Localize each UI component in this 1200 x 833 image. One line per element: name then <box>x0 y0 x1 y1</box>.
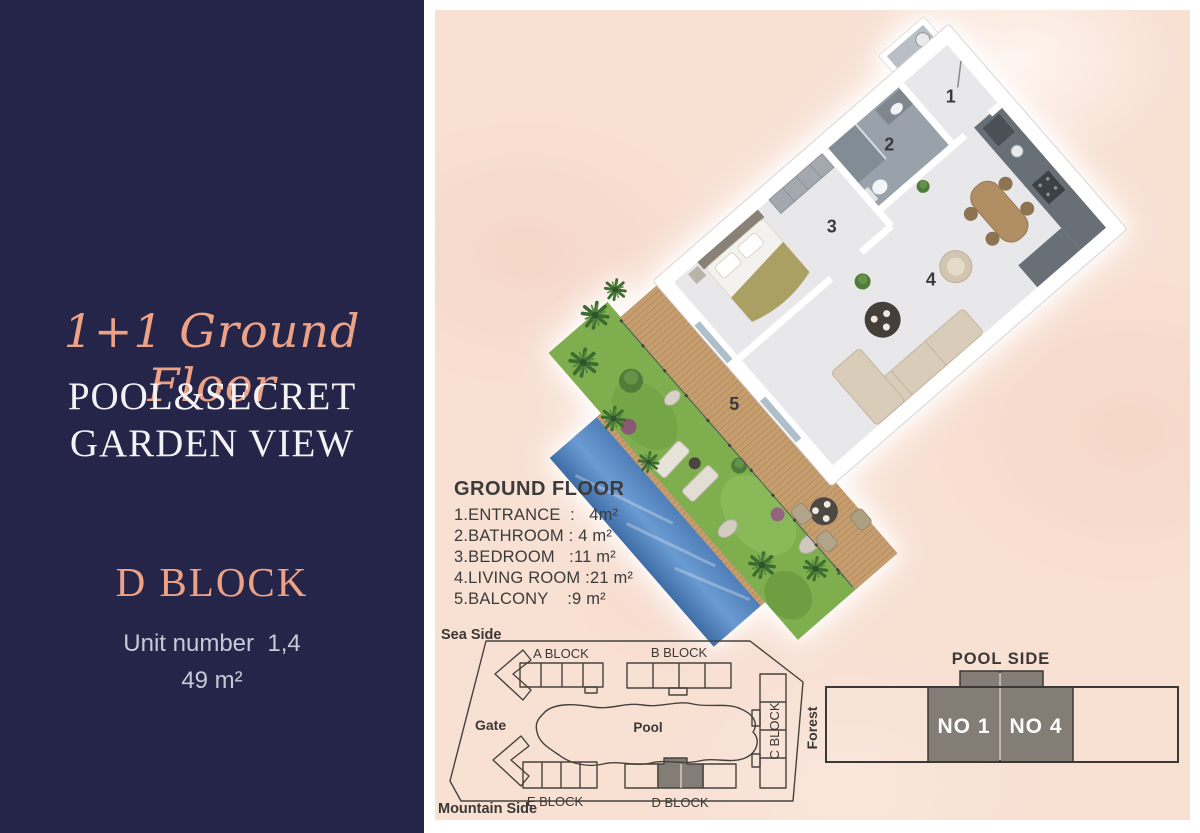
subtitle-line-2: GARDEN VIEW <box>0 421 424 466</box>
unit-no4-label: NO 4 <box>1009 715 1062 738</box>
block-b-label: B BLOCK <box>651 645 708 660</box>
room-number-balcony: 5 <box>729 394 739 414</box>
plan-panel: 1 2 3 4 5 <box>435 10 1190 820</box>
forest-label: Forest <box>804 706 820 749</box>
block-title: D BLOCK <box>0 558 424 606</box>
legend-item-entrance: 1.ENTRANCE : 4m² <box>454 505 633 526</box>
legend-item-bathroom: 2.BATHROOM : 4 m² <box>454 526 633 547</box>
page: 1+1 Ground Floor POOL&SECRET GARDEN VIEW… <box>0 0 1200 833</box>
legend-item-bedroom: 3.BEDROOM :11 m² <box>454 547 633 568</box>
site-block-e <box>493 736 597 788</box>
floor-plan-legend: GROUND FLOOR 1.ENTRANCE : 4m² 2.BATHROOM… <box>454 478 633 610</box>
block-e-label: E BLOCK <box>527 794 584 809</box>
pool-side-label: POOL SIDE <box>952 650 1051 668</box>
legend-title: GROUND FLOOR <box>454 478 633 501</box>
subtitle-line-1: POOL&SECRET <box>0 374 424 419</box>
legend-item-balcony: 5.BALCONY :9 m² <box>454 589 633 610</box>
unit-no1-label: NO 1 <box>937 715 990 738</box>
legend-item-living-room: 4.LIVING ROOM :21 m² <box>454 568 633 589</box>
room-number-bedroom: 3 <box>827 216 837 236</box>
gate-label: Gate <box>475 717 506 733</box>
unit-number: Unit number 1,4 <box>0 630 424 658</box>
block-c-label: C BLOCK <box>767 702 782 759</box>
site-plan: Sea Side Mountain Side Gate Pool A BLOCK… <box>438 627 820 817</box>
left-info-panel: 1+1 Ground Floor POOL&SECRET GARDEN VIEW… <box>0 0 424 833</box>
block-d-label: D BLOCK <box>651 795 708 810</box>
pool-label: Pool <box>633 720 662 735</box>
mountain-side-label: Mountain Side <box>438 801 537 817</box>
unit-area: 49 m² <box>0 667 424 695</box>
room-number-living: 4 <box>926 269 936 289</box>
site-block-b <box>627 663 731 695</box>
room-number-entrance: 1 <box>946 87 956 107</box>
unit-position-diagram: POOL SIDE NO 1 NO 4 <box>826 650 1178 762</box>
floor-plan-svg: 1 2 3 4 5 <box>435 10 1190 820</box>
room-number-bathroom: 2 <box>884 135 894 155</box>
sea-side-label: Sea Side <box>441 627 501 643</box>
block-a-label: A BLOCK <box>533 646 589 661</box>
